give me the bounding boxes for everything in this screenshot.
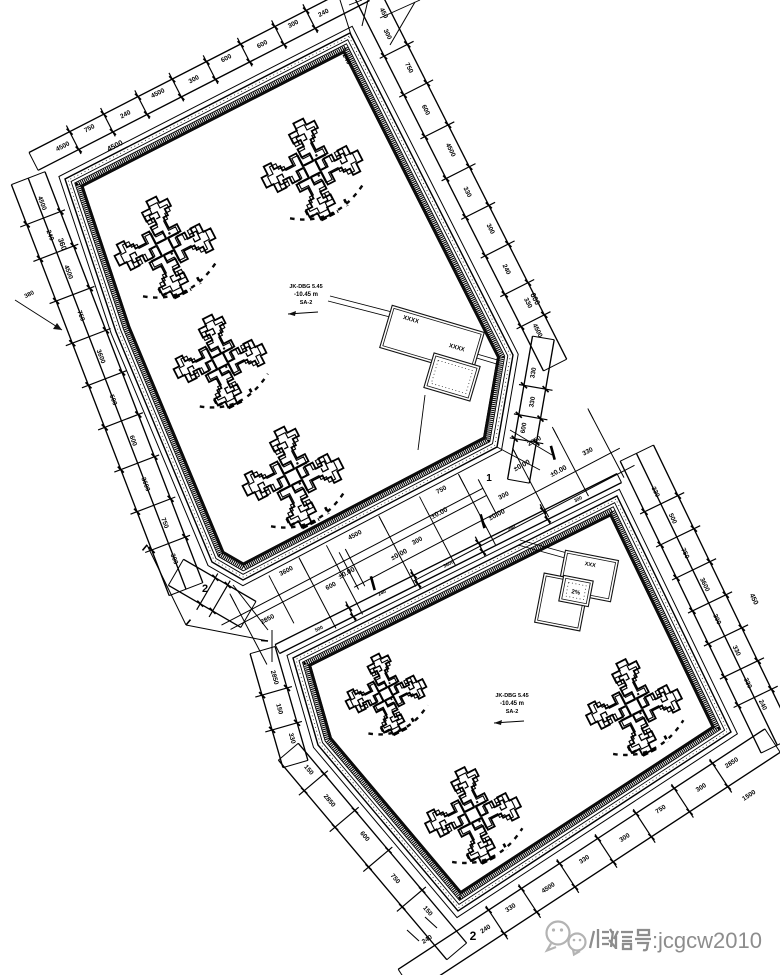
svg-text:SA-2: SA-2 bbox=[506, 709, 519, 715]
svg-text:2: 2 bbox=[202, 583, 208, 595]
svg-text:JK-DBG 5.45: JK-DBG 5.45 bbox=[289, 284, 322, 290]
svg-text:jcgcw2010: jcgcw2010 bbox=[657, 928, 762, 953]
svg-text:-10.45 m: -10.45 m bbox=[500, 701, 524, 707]
svg-text:2: 2 bbox=[470, 929, 477, 943]
svg-text:SA-2: SA-2 bbox=[300, 300, 313, 306]
svg-text:1: 1 bbox=[486, 473, 492, 484]
svg-text:-10.45 m: -10.45 m bbox=[294, 292, 318, 298]
svg-text:JK-DBG 5.45: JK-DBG 5.45 bbox=[495, 693, 528, 699]
